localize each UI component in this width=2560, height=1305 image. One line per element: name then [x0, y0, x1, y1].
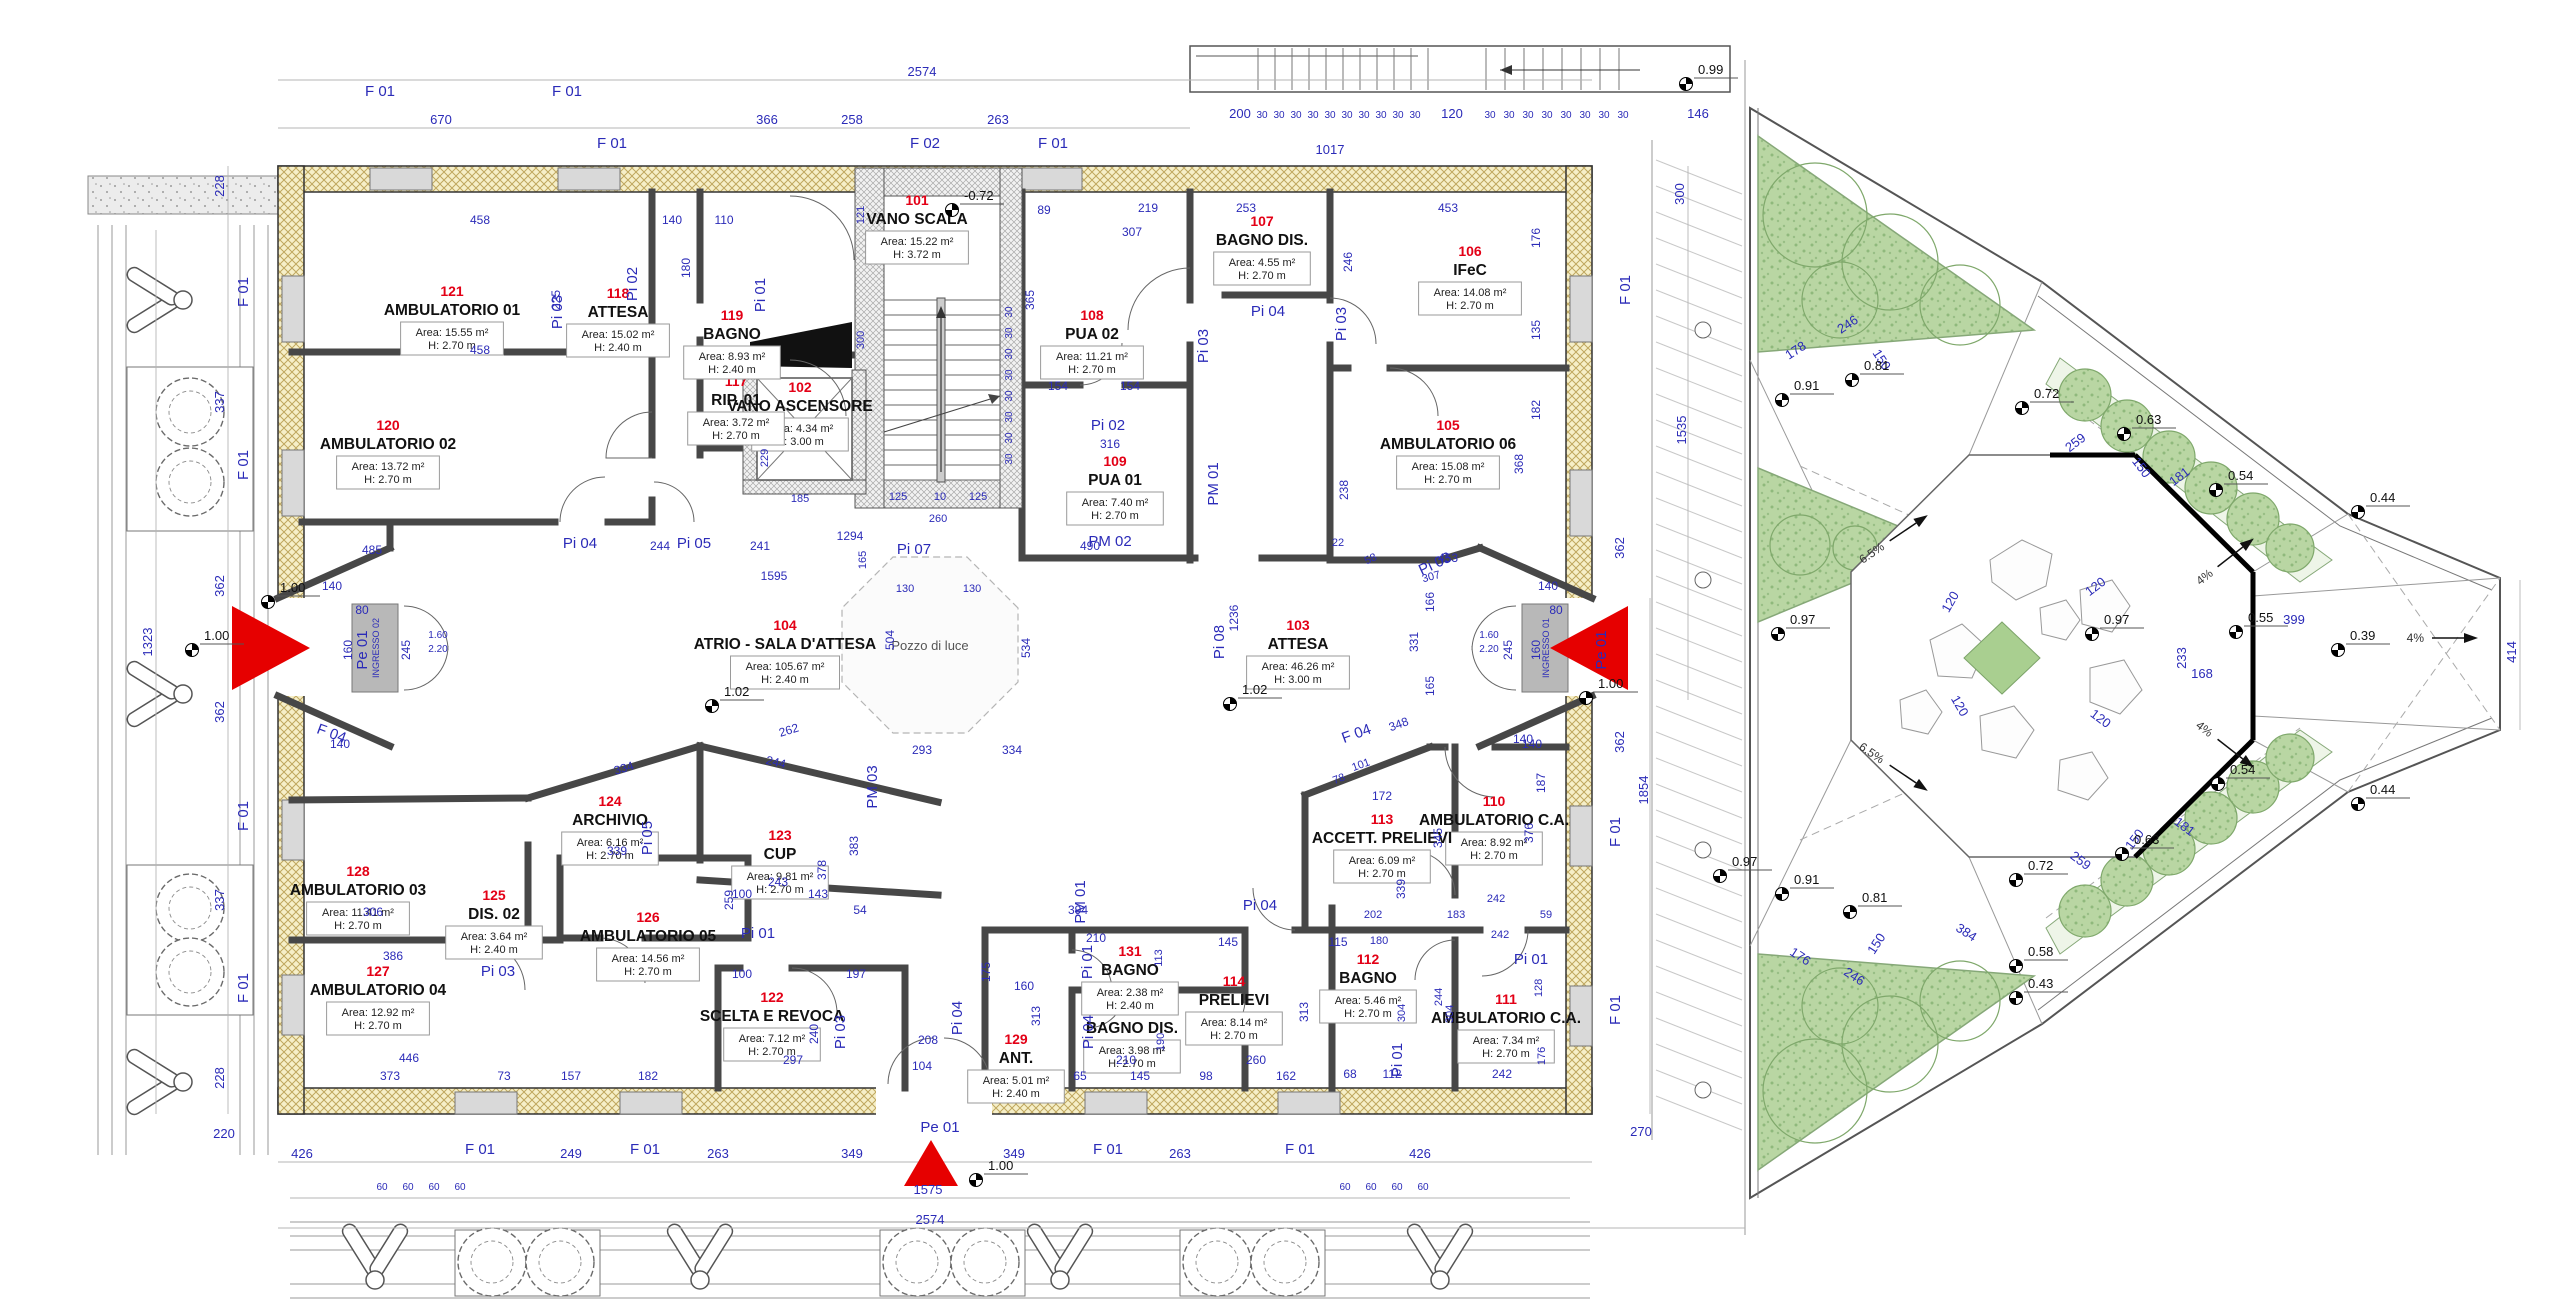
room-area: Area: 15.02 m² — [582, 329, 655, 341]
level-value: 0.91 — [1794, 378, 1819, 393]
room-name: PRELIEVI — [1199, 992, 1270, 1009]
level-value: 0.44 — [2370, 490, 2395, 505]
opening-label: Pi 01 — [1514, 951, 1548, 968]
room-number: 105 — [1436, 417, 1460, 433]
dim-text: 2.20 — [428, 644, 448, 655]
dim-text: 145 — [1218, 935, 1238, 949]
dim-text: 168 — [2191, 666, 2213, 681]
opening-label: Pi 04 — [1251, 303, 1285, 320]
room-height: H: 2.40 m — [1106, 1000, 1154, 1012]
opening-label: F 01 — [235, 801, 252, 831]
dim-text: 228 — [212, 1067, 227, 1089]
room-number: 122 — [760, 989, 784, 1005]
room-area: Area: 7.12 m² — [739, 1033, 806, 1045]
room-name: BAGNO — [1339, 970, 1397, 987]
opening-label: F 02 — [910, 135, 940, 152]
room-name: BAGNO DIS. — [1216, 232, 1308, 249]
room-number: 104 — [773, 617, 797, 633]
dim-text: 59 — [1540, 909, 1552, 921]
level-value: 1.00 — [1598, 676, 1623, 691]
opening-label: Pi 04 — [949, 1001, 966, 1035]
dim-text: 362 — [1612, 537, 1627, 559]
dim-text: 146 — [1687, 106, 1709, 121]
room-height: H: 3.72 m — [893, 249, 941, 261]
dim-text: 30 — [1004, 411, 1015, 423]
dim-text: 160 — [1529, 640, 1543, 660]
level-value: 0.72 — [2028, 858, 2053, 873]
room-number: 129 — [1004, 1031, 1028, 1047]
room-height: H: 2.70 m — [1344, 1008, 1392, 1020]
dim-text: 183 — [1447, 909, 1465, 921]
opening-label: Pi 05 — [639, 821, 656, 855]
dim-text: 202 — [1364, 909, 1382, 921]
dim-text: 73 — [497, 1069, 511, 1083]
room-number: 121 — [440, 283, 464, 299]
room-number: 128 — [346, 863, 370, 879]
dim-text: 30 — [1375, 110, 1387, 121]
external-stair-north — [1190, 46, 1730, 92]
level-value: 0.44 — [2370, 782, 2395, 797]
dim-text: 145 — [1130, 1069, 1150, 1083]
dim-text: 197 — [846, 967, 866, 981]
room-name: IFeC — [1453, 262, 1487, 279]
dim-text: 307 — [1122, 225, 1142, 239]
room-name: RIP. 01 — [711, 392, 761, 409]
dim-text: 426 — [291, 1146, 313, 1161]
room-name: BAGNO — [1101, 962, 1159, 979]
room-number: 103 — [1286, 617, 1310, 633]
room-name: AMBULATORIO C.A. — [1419, 812, 1569, 829]
dim-text: 426 — [1409, 1146, 1431, 1161]
room-number: 113 — [1371, 811, 1394, 827]
opening-label: Pi 03 — [1195, 329, 1212, 363]
dim-text: 190 — [1155, 1033, 1167, 1051]
room-number: 124 — [598, 793, 622, 809]
dim-text: 182 — [638, 1069, 658, 1083]
opening-label: Pi 08 — [1211, 625, 1228, 659]
dim-text: 185 — [791, 493, 809, 505]
dim-text: 334 — [1002, 743, 1022, 757]
opening-label: Pe 01 — [354, 630, 371, 669]
dim-text: 30 — [1560, 110, 1572, 121]
opening-label: F 01 — [630, 1141, 660, 1158]
dim-text: 366 — [756, 112, 778, 127]
dim-text: 263 — [1169, 1146, 1191, 1161]
dim-text: 1017 — [1316, 142, 1345, 157]
dim-text: 399 — [2283, 612, 2305, 627]
dim-text: 143 — [808, 887, 828, 901]
dim-text: 125 — [969, 491, 987, 503]
dim-text: 160 — [1014, 979, 1034, 993]
dim-text: 60 — [1339, 1182, 1351, 1193]
dim-text: 120 — [1441, 106, 1463, 121]
room-name: PUA 02 — [1065, 326, 1119, 343]
opening-label: Pi 01 — [1389, 1043, 1406, 1077]
dim-text: 115 — [1328, 935, 1347, 949]
dim-text: 260 — [1246, 1053, 1266, 1067]
room-number: 126 — [636, 909, 660, 925]
room-number: 102 — [788, 379, 812, 395]
opening-label: F 01 — [1607, 995, 1624, 1025]
dim-text: 339 — [607, 844, 627, 858]
dim-text: 1294 — [837, 529, 864, 543]
opening-label: Pi 03 — [832, 1015, 849, 1049]
opening-label: F 01 — [1093, 1141, 1123, 1158]
dim-text: 176 — [1536, 1047, 1548, 1065]
room-height: H: 2.70 m — [1482, 1048, 1530, 1060]
opening-label: Pi 02 — [624, 267, 641, 301]
dim-text: 140 — [322, 579, 342, 593]
dim-text: 249 — [560, 1146, 582, 1161]
level-value: 1.00 — [204, 628, 229, 643]
dim-text: 241 — [750, 539, 770, 553]
dim-text: 187 — [1534, 773, 1548, 793]
dim-text: 293 — [912, 743, 932, 757]
dim-text: 154 — [1120, 379, 1140, 393]
dim-text: 386 — [383, 949, 403, 963]
dim-text: 339 — [1394, 879, 1408, 899]
dim-text: 244 — [1433, 988, 1445, 1006]
opening-label: F 01 — [365, 83, 395, 100]
dim-text: 376 — [1522, 823, 1536, 843]
dim-text: 30 — [1522, 110, 1534, 121]
room-area: Area: 15.08 m² — [1412, 461, 1485, 473]
room-area: Area: 105.67 m² — [746, 661, 825, 673]
dim-text: 229 — [759, 449, 771, 467]
dim-text: 30 — [1256, 110, 1268, 121]
room-area: Area: 14.08 m² — [1434, 287, 1507, 299]
entrance-arrow-south — [904, 1140, 958, 1186]
dim-text: 10 — [934, 491, 946, 503]
dim-text: 233 — [2174, 647, 2189, 669]
dim-text: 362 — [212, 575, 227, 597]
room-area: Area: 7.40 m² — [1082, 497, 1149, 509]
dim-text: 68 — [1343, 1067, 1357, 1081]
dim-text: 30 — [1004, 306, 1015, 318]
opening-label: F 01 — [552, 83, 582, 100]
dim-text: 80 — [1549, 603, 1563, 617]
room-number: 119 — [721, 307, 744, 323]
dim-text: 414 — [2504, 641, 2519, 663]
dim-text: 1854 — [1636, 776, 1651, 805]
dim-text: 1595 — [761, 569, 788, 583]
level-value: -0.72 — [964, 188, 994, 203]
room-area: Area: 5.46 m² — [1335, 995, 1402, 1007]
opening-label: F 01 — [235, 450, 252, 480]
dim-text: 504 — [883, 630, 897, 650]
dim-text: 349 — [841, 1146, 863, 1161]
room-name: ARCHIVIO — [572, 812, 648, 829]
opening-label: PM 01 — [1072, 880, 1089, 923]
dim-text: 362 — [1612, 731, 1627, 753]
dim-text: 180 — [1370, 935, 1388, 947]
dim-text: 30 — [1341, 110, 1353, 121]
dim-text: 243 — [768, 875, 788, 889]
roof-garden-ne — [1758, 136, 2034, 352]
dim-text: 2.20 — [1479, 644, 1499, 655]
room-area: Area: 14.56 m² — [612, 953, 685, 965]
dim-text: 365 — [1023, 290, 1037, 310]
dim-text: 172 — [1372, 789, 1392, 803]
room-number: 108 — [1080, 307, 1104, 323]
room-area: Area: 11.41 m² — [322, 907, 394, 919]
dim-text: 154 — [1048, 379, 1068, 393]
roof-garden-se — [1758, 954, 2034, 1170]
dim-text: 670 — [430, 112, 452, 127]
slope-value: 4% — [2407, 631, 2425, 645]
room-height: H: 2.70 m — [624, 966, 672, 978]
opening-label: Pi 01 — [741, 925, 775, 942]
dim-text: 1236 — [1227, 604, 1241, 631]
dim-text: 60 — [402, 1182, 414, 1193]
spot-level: 0.44 — [2352, 490, 2411, 519]
dim-text: 130 — [896, 583, 914, 595]
room-number: 127 — [366, 963, 390, 979]
dim-text: 30 — [1290, 110, 1302, 121]
room-name: AMBULATORIO 03 — [290, 882, 427, 899]
dim-text: 30 — [1541, 110, 1553, 121]
dim-text: 1575 — [914, 1182, 943, 1197]
level-value: 0.97 — [1732, 854, 1757, 869]
room-number: 131 — [1118, 943, 1142, 959]
dim-text: 130 — [963, 583, 981, 595]
room-name: CUP — [764, 846, 797, 863]
dim-text: 182 — [1529, 400, 1543, 420]
opening-label: Pe 01 — [1593, 630, 1610, 669]
room-height: H: 2.70 m — [1358, 868, 1406, 880]
room-area: Area: 11.21 m² — [1056, 351, 1128, 363]
room-area: Area: 3.72 m² — [703, 417, 770, 429]
dim-text: 368 — [1512, 454, 1526, 474]
dim-text: 30 — [1307, 110, 1319, 121]
opening-label: Pi 01 — [1079, 945, 1096, 979]
level-value: 0.97 — [2104, 612, 2129, 627]
room-area: Area: 8.93 m² — [699, 351, 766, 363]
opening-label: F 01 — [1607, 817, 1624, 847]
dim-text: 166 — [1423, 592, 1437, 612]
level-value: 0.91 — [1794, 872, 1819, 887]
dim-text: 337 — [212, 889, 227, 911]
opening-label: Pi 07 — [897, 541, 931, 558]
left-strip-trees — [125, 265, 253, 1117]
level-value: 0.58 — [2028, 944, 2053, 959]
dim-text: 113 — [1153, 949, 1165, 967]
level-value: 0.97 — [1790, 612, 1815, 627]
room-height: H: 2.70 m — [1091, 510, 1139, 522]
dim-text: 485 — [362, 543, 382, 557]
level-value: 1.00 — [280, 580, 305, 595]
room-height: H: 2.40 m — [594, 342, 642, 354]
room-name: ATRIO - SALA D'ATTESA — [694, 636, 877, 653]
dim-text: 2574 — [916, 1212, 945, 1227]
dim-text: 60 — [1417, 1182, 1429, 1193]
dim-text: 30 — [1617, 110, 1629, 121]
level-value: 1.02 — [1242, 682, 1267, 697]
dim-text: 228 — [212, 175, 227, 197]
level-value: 0.99 — [1698, 62, 1723, 77]
room-name: AMBULATORIO 01 — [384, 302, 521, 319]
dim-text: 30 — [1598, 110, 1610, 121]
room-height: H: 3.00 m — [1274, 674, 1322, 686]
dim-text: 242 — [1487, 893, 1505, 905]
dim-text: 245 — [399, 640, 413, 660]
dim-text: 30 — [1579, 110, 1591, 121]
dim-text: 242 — [1492, 1067, 1512, 1081]
dim-text: 175 — [979, 962, 993, 982]
opening-label: PM 01 — [1205, 462, 1222, 505]
room-number: 112 — [1357, 951, 1380, 967]
dim-text: 65 — [1073, 1069, 1087, 1083]
room-height: H: 2.70 m — [428, 340, 476, 352]
dim-text: 304 — [1396, 1004, 1408, 1022]
opening-label: F 01 — [1617, 275, 1634, 305]
dim-text: 128 — [1533, 979, 1545, 997]
dim-text: 60 — [428, 1182, 440, 1193]
dim-text: 534 — [1019, 638, 1033, 658]
dim-text: 160 — [341, 640, 355, 660]
dim-text: 180 — [679, 258, 693, 278]
dim-text: 345 — [1431, 828, 1445, 848]
opening-label: F 01 — [235, 277, 252, 307]
road-right — [1652, 60, 1745, 1235]
dim-text: 30 — [1358, 110, 1370, 121]
dim-text: 110 — [714, 213, 733, 227]
dim-text: 30 — [1392, 110, 1404, 121]
room-area: Area: 2.38 m² — [1097, 987, 1164, 999]
room-height: H: 2.70 m — [364, 474, 412, 486]
room-name: DIS. 02 — [468, 906, 520, 923]
dim-text: 263 — [987, 112, 1009, 127]
room-height: H: 2.70 m — [1210, 1030, 1258, 1042]
room-area: Area: 7.34 m² — [1473, 1035, 1540, 1047]
room-height: H: 2.70 m — [1446, 300, 1494, 312]
dim-text: 297 — [783, 1053, 803, 1067]
dim-text: 383 — [847, 836, 861, 856]
dim-text: 135 — [1529, 320, 1543, 340]
dim-text: 60 — [1365, 1182, 1377, 1193]
ingresso-02-label: INGRESSO 02 — [371, 618, 381, 678]
room-name: AMBULATORIO 05 — [580, 928, 717, 945]
dim-text: 30 — [1484, 110, 1496, 121]
room-name: ANT. — [999, 1050, 1033, 1067]
dim-text: 22 — [1332, 537, 1344, 549]
dim-text: 30 — [1409, 110, 1421, 121]
room-name: SCELTA E REVOCA — [700, 1008, 844, 1025]
opening-label: Pi 04 — [1080, 1015, 1097, 1049]
level-value: 0.54 — [2228, 468, 2253, 483]
room-area: Area: 13.72 m² — [352, 461, 425, 473]
room-height: H: 2.40 m — [992, 1088, 1040, 1100]
level-value: 0.55 — [2248, 610, 2273, 625]
dim-text: 331 — [1407, 632, 1421, 652]
opening-label: Pi 05 — [677, 535, 711, 552]
room-height: H: 2.70 m — [712, 430, 760, 442]
dim-text: 60 — [1391, 1182, 1403, 1193]
dim-text: 246 — [1341, 252, 1355, 272]
room-number: 109 — [1103, 453, 1127, 469]
dim-text: 140 — [1513, 732, 1533, 746]
dim-text: 304 — [1444, 1005, 1456, 1023]
dim-text: 89 — [1037, 203, 1051, 217]
dim-text: 121 — [855, 206, 867, 224]
room-number: 101 — [905, 192, 929, 208]
dim-text: 162 — [1276, 1069, 1296, 1083]
room-height: H: 2.40 m — [761, 674, 809, 686]
floorplan-canvas: Pozzo di luce INGRESSO 02 INGRESSO 01 — [0, 0, 2560, 1300]
room-name: AMBULATORIO 04 — [310, 982, 447, 999]
dim-text: 60 — [376, 1182, 388, 1193]
dim-text: 1.60 — [428, 630, 448, 641]
dim-text: 30 — [1004, 327, 1015, 339]
opening-label: F 01 — [1038, 135, 1068, 152]
room-area: Area: 12.92 m² — [342, 1007, 415, 1019]
dim-text: 30 — [1273, 110, 1285, 121]
room-number: 107 — [1250, 213, 1274, 229]
bottom-strip-trees — [340, 1222, 1475, 1296]
room-number: 114 — [1223, 973, 1246, 989]
opening-label: Pi 02 — [1091, 417, 1125, 434]
room-height: H: 2.70 m — [1470, 850, 1518, 862]
dim-text: 238 — [1337, 480, 1351, 500]
dim-text: 259 — [722, 890, 736, 910]
room-area: Area: 4.55 m² — [1229, 257, 1296, 269]
dim-text: 313 — [1297, 1002, 1311, 1022]
dim-text: 125 — [889, 491, 907, 503]
room-number: 111 — [1495, 991, 1517, 1007]
dim-text: 306 — [363, 905, 383, 919]
room-height: H: 2.40 m — [708, 364, 756, 376]
opening-label: F 01 — [597, 135, 627, 152]
room-name: ATTESA — [588, 304, 649, 321]
dim-text: 2574 — [908, 64, 937, 79]
level-value: 1.02 — [724, 684, 749, 699]
dim-text: 373 — [380, 1069, 400, 1083]
opening-label: PM 02 — [1088, 533, 1131, 550]
room-area: Area: 8.14 m² — [1201, 1017, 1268, 1029]
dim-text: 140 — [662, 213, 682, 227]
dim-text: 244 — [650, 539, 670, 553]
opening-label: Pi 03 — [1333, 307, 1350, 341]
dim-text: 104 — [912, 1059, 932, 1073]
dim-text: 220 — [213, 1126, 235, 1141]
room-name: AMBULATORIO 02 — [320, 436, 456, 453]
opening-label: F 01 — [1285, 1141, 1315, 1158]
room-name: ATTESA — [1268, 636, 1329, 653]
opening-label: Pi 03 — [549, 295, 566, 329]
dim-text: 263 — [707, 1146, 729, 1161]
dim-text: 458 — [470, 343, 490, 357]
dim-text: 378 — [815, 860, 829, 880]
dim-text: 270 — [1630, 1124, 1652, 1139]
level-value: 0.39 — [2350, 628, 2375, 643]
room-name: AMBULATORIO 06 — [1380, 436, 1517, 453]
dim-text: 458 — [470, 213, 490, 227]
dim-text: 245 — [1501, 640, 1515, 660]
room-area: Area: 6.09 m² — [1349, 855, 1416, 867]
dim-text: 300 — [855, 331, 867, 349]
room-area: Area: 46.26 m² — [1262, 661, 1335, 673]
room-area: Area: 3.64 m² — [461, 931, 528, 943]
opening-label: Pi 04 — [563, 535, 597, 552]
room-height: H: 2.70 m — [334, 920, 382, 932]
dim-text: 54 — [853, 903, 867, 917]
opening-label: Pe 01 — [920, 1119, 959, 1136]
room-number: 120 — [376, 417, 400, 433]
dim-text: 240 — [807, 1024, 821, 1044]
dim-text: 219 — [1138, 201, 1158, 215]
dim-text: 98 — [1199, 1069, 1213, 1083]
dim-text: 260 — [929, 513, 947, 525]
